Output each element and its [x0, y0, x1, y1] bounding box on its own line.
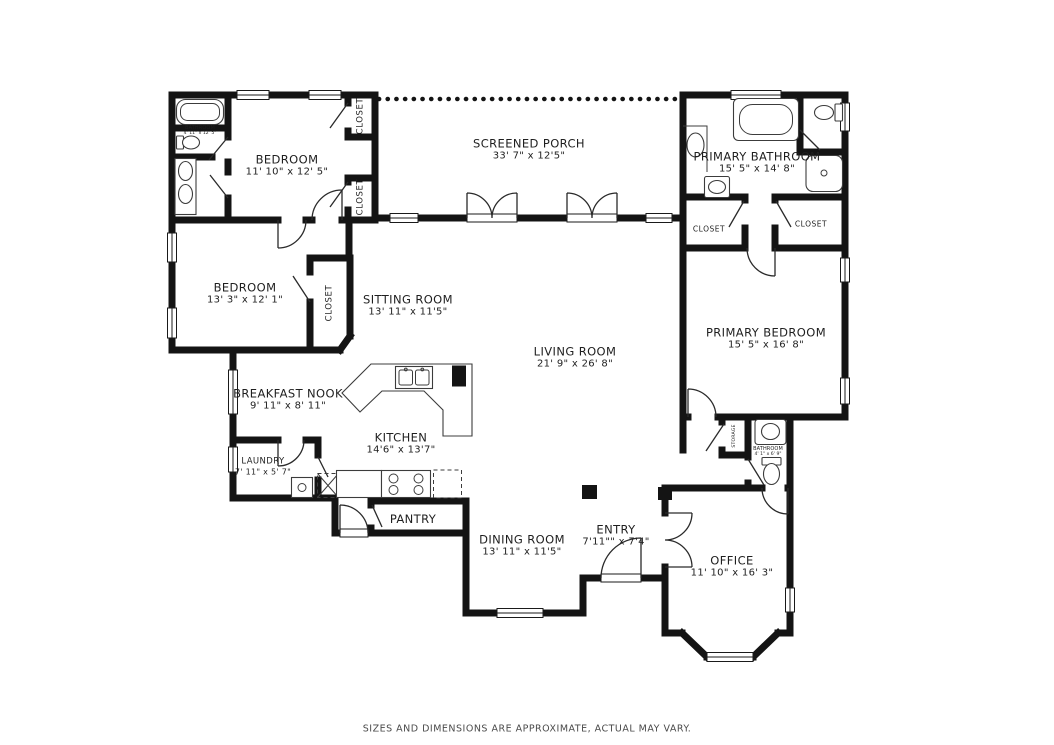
- room-dims: 11' 10" x 16' 3": [691, 568, 774, 581]
- room-label-office: OFFICE 11' 10" x 16' 3": [691, 554, 774, 581]
- room-label-kitchen: KITCHEN 14'6" x 13'7": [366, 431, 435, 458]
- room-label-sitting-room: SITTING ROOM 13' 11" x 11'5": [363, 293, 453, 320]
- laundry-sink: [292, 478, 313, 498]
- sink: [179, 162, 193, 181]
- room-name: BEDROOM: [207, 281, 283, 295]
- toilet-tank: [835, 104, 843, 121]
- room-label-bathroom-office: BATHROOM 4' 1" x 6' 9": [753, 446, 783, 458]
- toilet-bowl: [815, 106, 834, 120]
- door-sill: [340, 529, 368, 537]
- room-dims: 7' 11" x 5' 7": [235, 467, 291, 477]
- room-name: DINING ROOM: [479, 533, 565, 547]
- room-dims: 15' 5" x 16' 8": [706, 340, 826, 353]
- sink: [709, 181, 726, 194]
- window: [237, 91, 269, 100]
- window: [841, 378, 850, 404]
- room-name: CLOSET: [325, 285, 336, 322]
- bedroom2-door: [278, 220, 306, 248]
- room-name: OFFICE: [691, 554, 774, 568]
- room-name: BREAKFAST NOOK: [233, 387, 343, 401]
- room-label-bedroom-2: BEDROOM 13' 3" x 12' 1": [207, 281, 283, 308]
- room-dims: 14'6" x 13'7": [366, 445, 435, 458]
- room-label-screened-porch: SCREENED PORCH 33' 7" x 12'5": [473, 137, 585, 164]
- room-name: LAUNDRY: [235, 457, 291, 468]
- room-label-entry: ENTRY 7'11"" x 7'4": [582, 523, 649, 550]
- disclaimer-text: SIZES AND DIMENSIONS ARE APPROXIMATE, AC…: [363, 724, 691, 735]
- door-sill: [601, 574, 641, 582]
- room-dims: 33' 7" x 12'5": [473, 151, 585, 164]
- bathroom-tl-door: [209, 137, 228, 160]
- toilet-bowl: [764, 464, 780, 485]
- room-name: CLOSET: [356, 179, 367, 216]
- bay-window: [707, 653, 753, 662]
- wall-post: [582, 485, 597, 499]
- window: [168, 233, 177, 262]
- island-end-cabinet: [452, 366, 466, 387]
- room-name: LIVING ROOM: [534, 345, 617, 359]
- window: [168, 308, 177, 338]
- room-dims: 4' 11" x 12' 5": [184, 131, 217, 137]
- room-label-breakfast-nook: BREAKFAST NOOK 9' 11" x 8' 11": [233, 387, 343, 414]
- room-label-living-room: LIVING ROOM 21' 9" x 26' 8": [534, 345, 617, 372]
- room-name: CLOSET: [693, 224, 725, 233]
- sink: [179, 185, 193, 204]
- room-dims: 4' 1" x 6' 9": [753, 452, 783, 458]
- primary-closet-right-door: [776, 201, 791, 227]
- primary-closet-left-door: [729, 201, 744, 227]
- room-name: SITTING ROOM: [363, 293, 453, 307]
- room-label-primary-bedroom: PRIMARY BEDROOM 15' 5" x 16' 8": [706, 326, 826, 353]
- pantry-door: [372, 505, 382, 527]
- room-label-primary-closet-right: CLOSET: [795, 219, 827, 228]
- sink: [762, 424, 780, 440]
- room-label-closet-bedroom2: CLOSET: [325, 285, 336, 322]
- room-dims: 7'11"" x 7'4": [582, 537, 649, 550]
- closet-tl-bottom-door: [330, 182, 348, 207]
- office-french-doors: [665, 513, 692, 567]
- room-label-primary-bathroom: PRIMARY BATHROOM 15' 5" x 14' 8": [694, 150, 821, 177]
- room-name: PRIMARY BATHROOM: [694, 150, 821, 164]
- refrigerator: [434, 470, 462, 498]
- room-name: STORAGE: [732, 424, 738, 447]
- room-name: PRIMARY BEDROOM: [706, 326, 826, 340]
- room-name: PANTRY: [390, 512, 436, 526]
- window: [497, 609, 543, 618]
- room-label-dining-room: DINING ROOM 13' 11" x 11'5": [479, 533, 565, 560]
- room-label-closet-bottom: CLOSET: [356, 179, 367, 216]
- room-label-pantry: PANTRY: [390, 512, 436, 526]
- room-dims: 13' 11" x 11'5": [363, 307, 453, 320]
- closet-bedroom2-door: [293, 276, 310, 302]
- room-label-closet-top: CLOSET: [356, 98, 367, 135]
- toilet-bowl: [183, 136, 200, 149]
- room-name: SCREENED PORCH: [473, 137, 585, 151]
- room-label-laundry: LAUNDRY 7' 11" x 5' 7": [235, 457, 291, 478]
- bedroom1-door: [312, 190, 342, 220]
- primary-closet-hall-door: [747, 248, 775, 276]
- room-label-storage: STORAGE: [732, 424, 738, 447]
- stove: [382, 471, 431, 498]
- room-dims: 11' 10" x 12' 5": [246, 167, 329, 180]
- room-label-bathroom-tl: BATHROOM 4' 11" x 12' 5": [184, 125, 217, 137]
- room-name: CLOSET: [356, 98, 367, 135]
- primary-bedroom-door: [688, 389, 716, 417]
- window: [390, 214, 418, 223]
- room-dims: 9' 11" x 8' 11": [233, 401, 343, 414]
- room-name: CLOSET: [795, 219, 827, 228]
- closet-tl-top-door: [330, 103, 348, 128]
- window: [786, 588, 795, 612]
- room-name: KITCHEN: [366, 431, 435, 445]
- room-dims: 21' 9" x 26' 8": [534, 359, 617, 372]
- office-door: [762, 488, 788, 514]
- floor-plan-drawing: [0, 0, 1054, 745]
- window: [309, 91, 341, 100]
- room-label-primary-closet-left: CLOSET: [693, 224, 725, 233]
- room-dims: 13' 3" x 12' 1": [207, 295, 283, 308]
- kitchen-counter: [337, 471, 382, 498]
- room-dims: 13' 11" x 11'5": [479, 547, 565, 560]
- window: [841, 258, 850, 282]
- room-label-bedroom-1: BEDROOM 11' 10" x 12' 5": [246, 153, 329, 180]
- floor-plan-page: BATHROOM 4' 11" x 12' 5" BEDROOM 11' 10"…: [0, 0, 1054, 745]
- room-name: ENTRY: [582, 523, 649, 537]
- wall-post: [658, 487, 672, 500]
- room-name: BEDROOM: [246, 153, 329, 167]
- window: [646, 214, 672, 223]
- room-dims: 15' 5" x 14' 8": [694, 164, 821, 177]
- vanity-door: [210, 175, 228, 198]
